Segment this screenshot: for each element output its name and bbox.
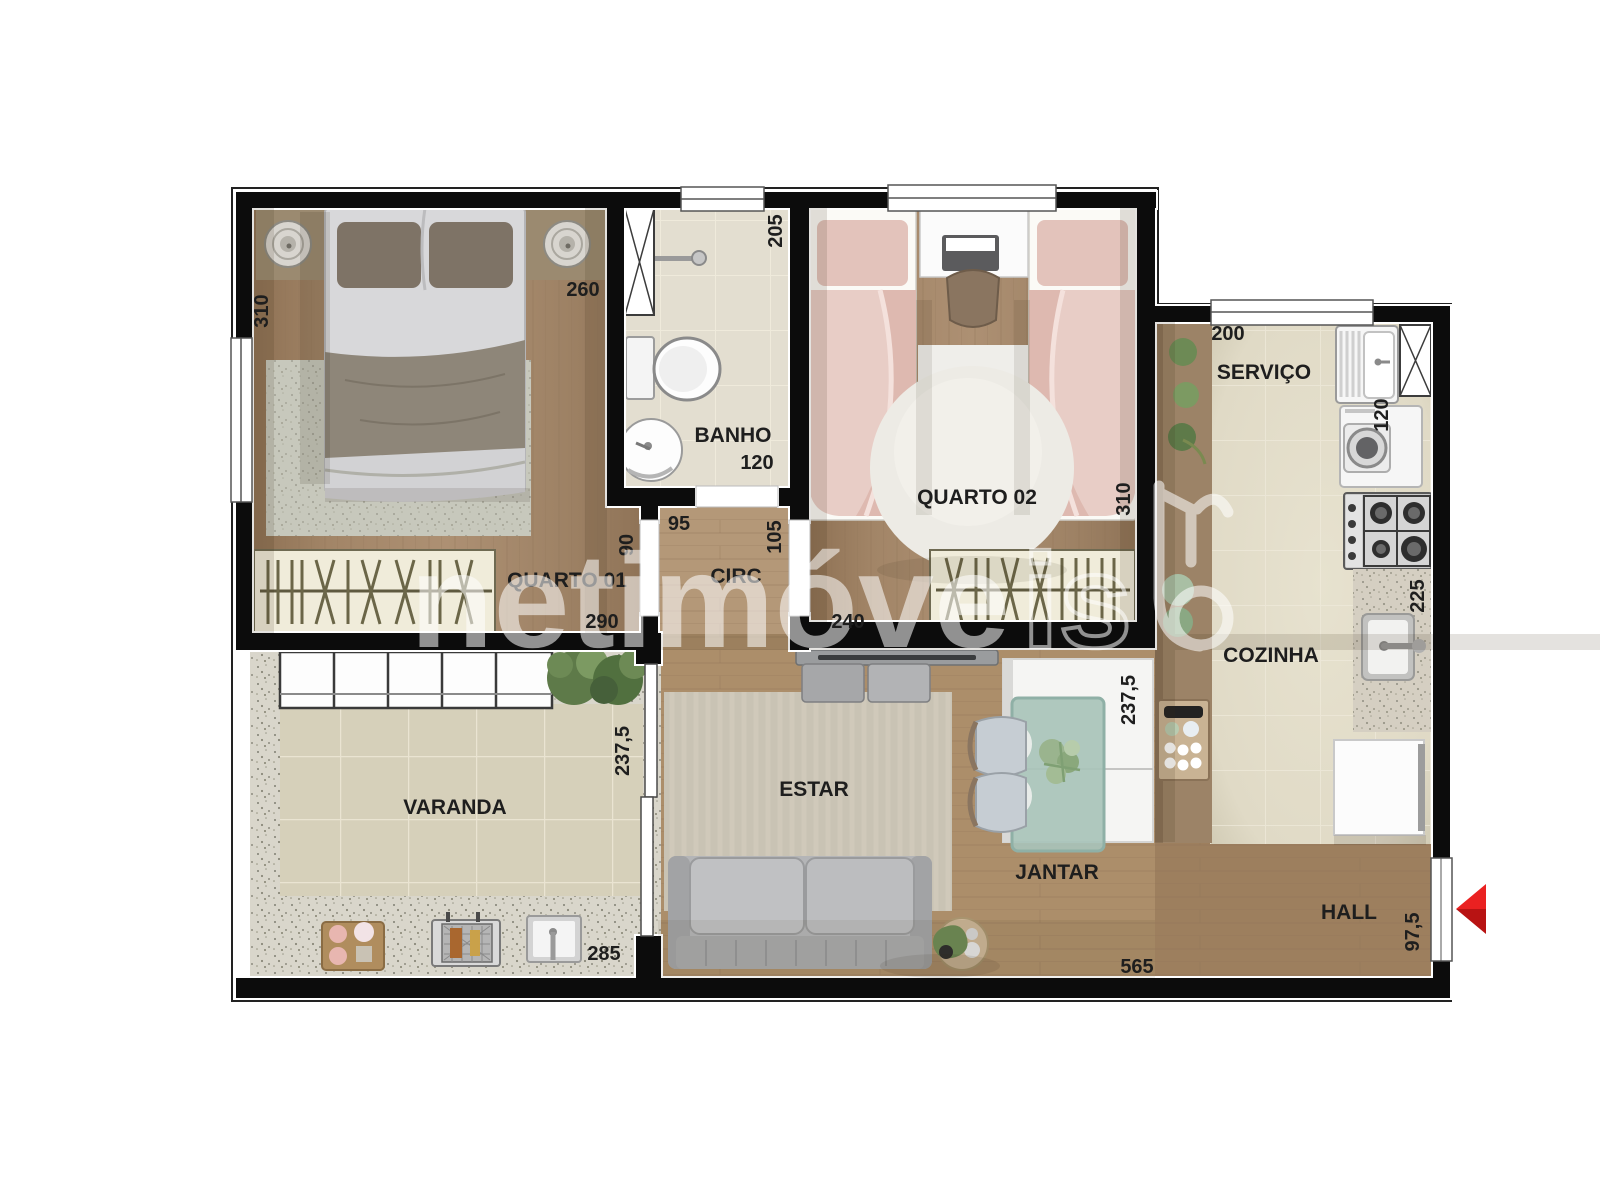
svg-text:260: 260: [566, 279, 599, 301]
svg-text:JANTAR: JANTAR: [1015, 861, 1099, 884]
svg-text:120: 120: [740, 452, 773, 474]
svg-text:200: 200: [1211, 323, 1244, 345]
svg-text:285: 285: [587, 943, 620, 965]
svg-text:BANHO: BANHO: [695, 424, 772, 447]
svg-text:VARANDA: VARANDA: [403, 796, 506, 819]
svg-text:120: 120: [1371, 398, 1393, 431]
svg-text:QUARTO 02: QUARTO 02: [917, 486, 1037, 509]
svg-text:290: 290: [585, 611, 618, 633]
svg-text:97,5: 97,5: [1402, 913, 1424, 952]
svg-text:205: 205: [765, 214, 787, 247]
svg-text:is: is: [1022, 527, 1132, 676]
svg-text:237,5: 237,5: [612, 726, 634, 776]
svg-text:565: 565: [1120, 956, 1153, 978]
svg-text:SERVIÇO: SERVIÇO: [1217, 361, 1311, 384]
svg-text:COZINHA: COZINHA: [1223, 644, 1319, 667]
svg-text:240: 240: [831, 611, 864, 633]
svg-text:ESTAR: ESTAR: [779, 778, 849, 801]
svg-text:225: 225: [1407, 579, 1429, 612]
svg-text:310: 310: [251, 294, 273, 327]
svg-text:netimóve: netimóve: [410, 527, 1010, 676]
svg-text:310: 310: [1113, 482, 1135, 515]
svg-text:237,5: 237,5: [1118, 675, 1140, 725]
svg-text:HALL: HALL: [1321, 901, 1377, 924]
